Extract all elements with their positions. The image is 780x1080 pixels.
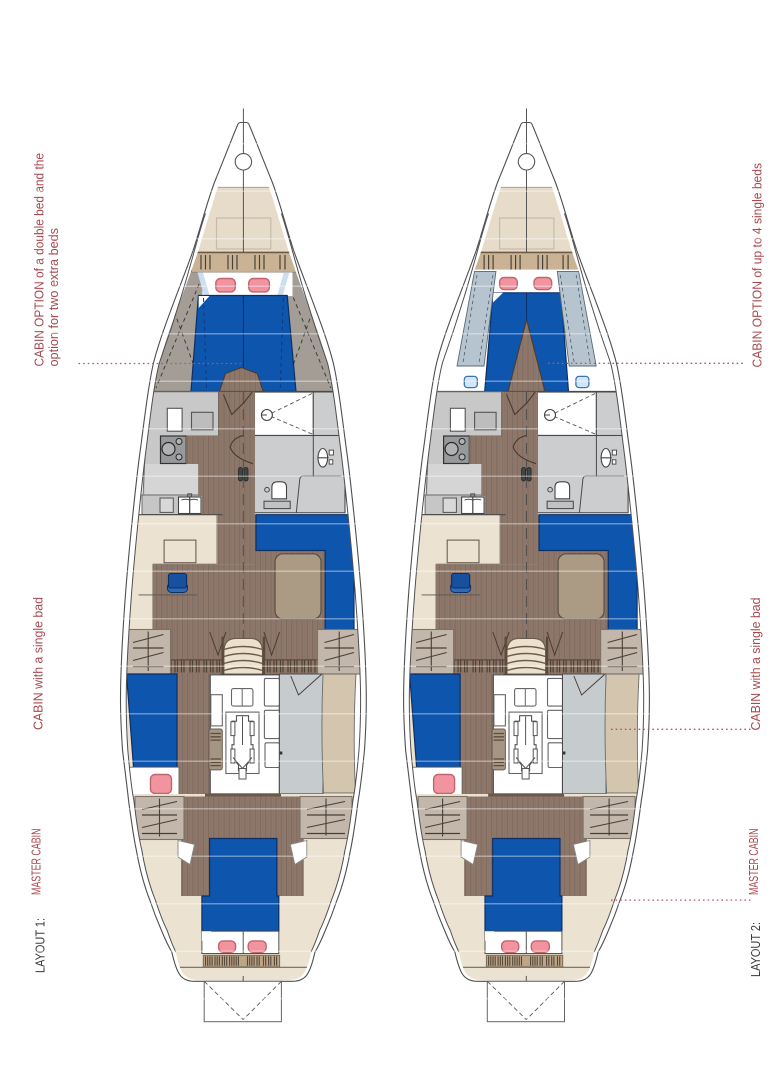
svg-text:CABIN OPTION of up to 4 single: CABIN OPTION of up to 4 single beds bbox=[751, 163, 765, 368]
svg-text:LAYOUT 2:: LAYOUT 2: bbox=[749, 922, 763, 977]
svg-text:LAYOUT 1:: LAYOUT 1: bbox=[34, 918, 48, 973]
svg-text:MASTER CABIN: MASTER CABIN bbox=[747, 829, 761, 896]
svg-text:CABIN with a single bad: CABIN with a single bad bbox=[749, 597, 763, 730]
svg-text:CABIN with a single bad: CABIN with a single bad bbox=[32, 597, 46, 730]
svg-text:MASTER CABIN: MASTER CABIN bbox=[30, 829, 44, 896]
svg-text:option for two extra beds: option for two extra beds bbox=[47, 228, 61, 367]
